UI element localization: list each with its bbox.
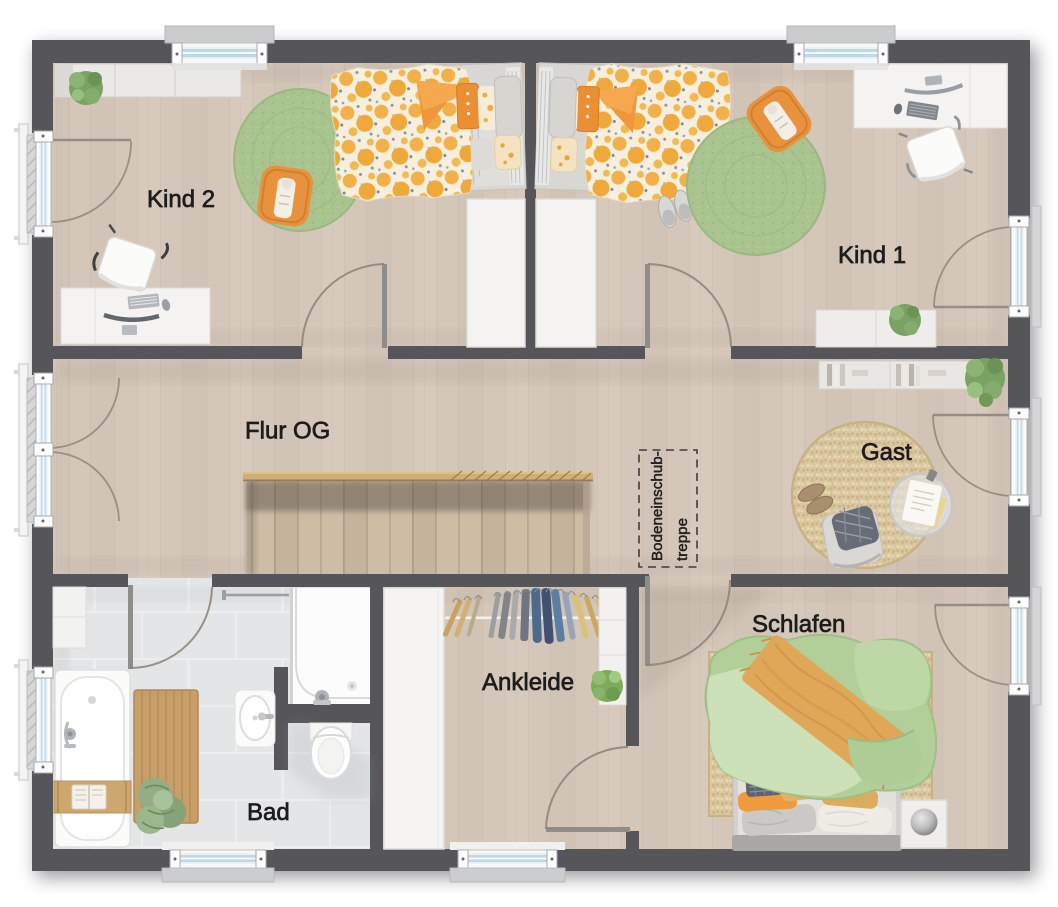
svg-text:Flur OG: Flur OG [245, 418, 330, 445]
svg-text:Bodeneinschub-: Bodeneinschub- [649, 451, 666, 561]
svg-text:Ankleide: Ankleide [482, 669, 574, 696]
svg-text:Gast: Gast [861, 439, 912, 466]
svg-text:Bad: Bad [247, 799, 290, 826]
svg-text:treppe: treppe [674, 518, 691, 561]
svg-text:Kind 1: Kind 1 [838, 242, 906, 269]
svg-text:Kind 2: Kind 2 [147, 186, 215, 213]
svg-text:Schlafen: Schlafen [752, 611, 845, 638]
